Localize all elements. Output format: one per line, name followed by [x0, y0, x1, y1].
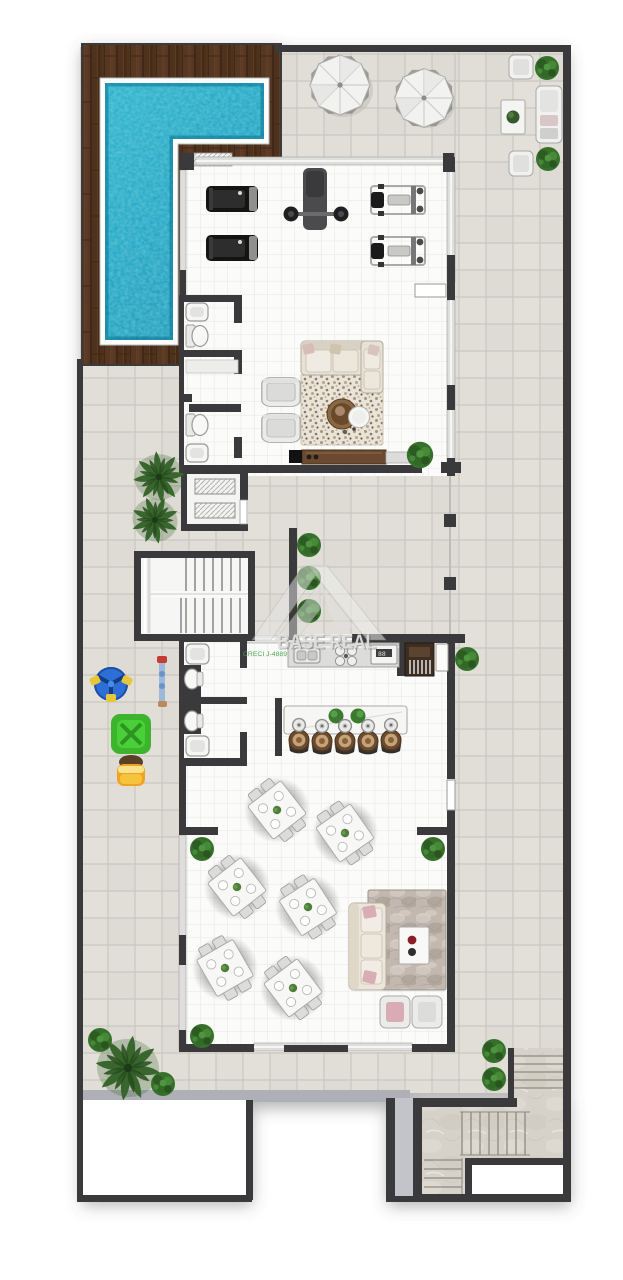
svg-text:CRECI J-4889: CRECI J-4889 — [243, 651, 287, 658]
svg-text:BASE REAL: BASE REAL — [277, 631, 376, 653]
svg-text:88: 88 — [378, 651, 386, 658]
